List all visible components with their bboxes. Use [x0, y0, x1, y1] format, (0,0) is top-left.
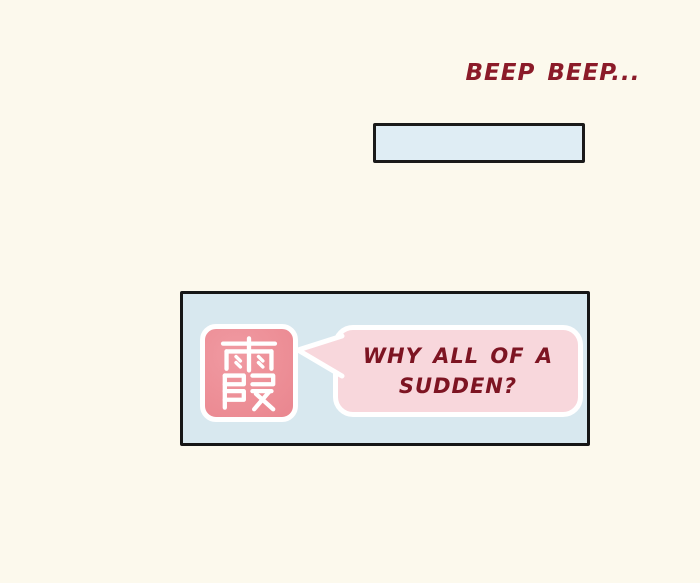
speech-bubble-tail [295, 333, 345, 379]
phone-screen-panel [373, 123, 585, 163]
sfx-beep-text: BEEP BEEP... [458, 60, 648, 86]
speech-line-2: SUDDEN? [399, 371, 517, 401]
chat-panel: WHY ALL OF A SUDDEN? [180, 291, 590, 446]
avatar [200, 324, 298, 422]
speech-bubble: WHY ALL OF A SUDDEN? [333, 325, 583, 417]
xia-character-stamp-icon [211, 333, 287, 413]
comic-page: BEEP BEEP... [0, 0, 700, 583]
speech-line-1: WHY ALL OF A [363, 341, 553, 371]
